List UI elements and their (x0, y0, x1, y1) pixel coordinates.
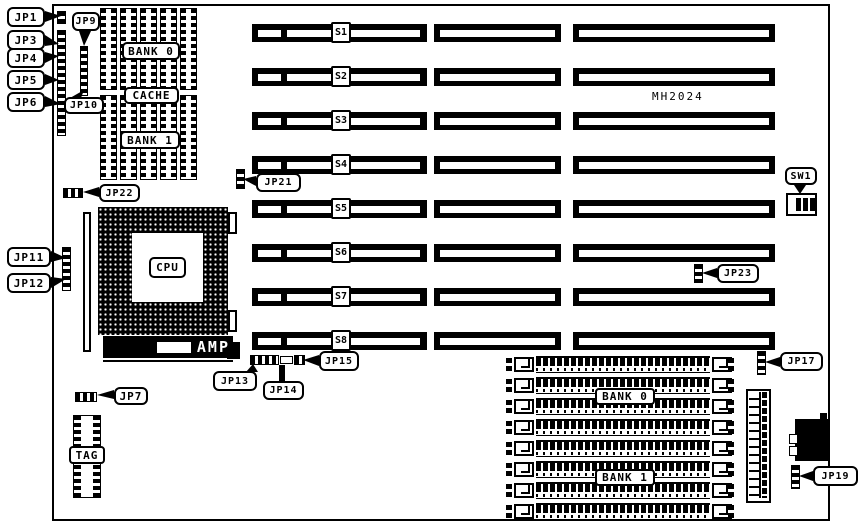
callout-jp22: JP22 (99, 184, 140, 202)
callout-jp9: JP9 (72, 12, 100, 31)
jp1-leader (45, 11, 61, 22)
callout-jp23: JP23 (717, 264, 759, 283)
jp22-leader (83, 187, 99, 197)
jp15-leader (303, 355, 319, 366)
jp17-leader (765, 357, 780, 367)
jp11-leader (51, 251, 66, 262)
jp12-leader (51, 277, 66, 288)
jp14-leader (279, 365, 285, 382)
sw1-leader (794, 185, 806, 194)
callout-jp10: JP10 (64, 97, 104, 114)
callout-jp3: JP3 (7, 30, 45, 50)
callout-jp17: JP17 (780, 352, 823, 371)
callout-jp7: JP7 (114, 387, 148, 405)
jp3-leader (45, 35, 59, 46)
jp9-leader (79, 31, 91, 46)
callout-jp1: JP1 (7, 7, 45, 27)
callout-jp11: JP11 (7, 247, 51, 267)
jp5-leader (45, 74, 59, 85)
jp7-leader (97, 390, 114, 399)
callout-jp12: JP12 (7, 273, 51, 293)
callout-jp14: JP14 (263, 381, 304, 400)
callout-jp15: JP15 (319, 351, 359, 371)
jp19-leader (799, 471, 813, 481)
callout-jp13: JP13 (213, 371, 257, 391)
callout-sw1: SW1 (785, 167, 817, 185)
callout-jp6: JP6 (7, 92, 45, 112)
jp6-leader (45, 96, 61, 107)
motherboard-diagram: S1 S2 S3 S4 S5 (0, 0, 863, 527)
callout-jp19: JP19 (813, 466, 858, 486)
jp21-leader (243, 176, 256, 186)
callout-jp21: JP21 (256, 173, 301, 192)
callout-jp5: JP5 (7, 70, 45, 90)
callout-jp4: JP4 (7, 48, 45, 68)
jp4-leader (45, 52, 59, 63)
jp23-leader (702, 268, 717, 278)
